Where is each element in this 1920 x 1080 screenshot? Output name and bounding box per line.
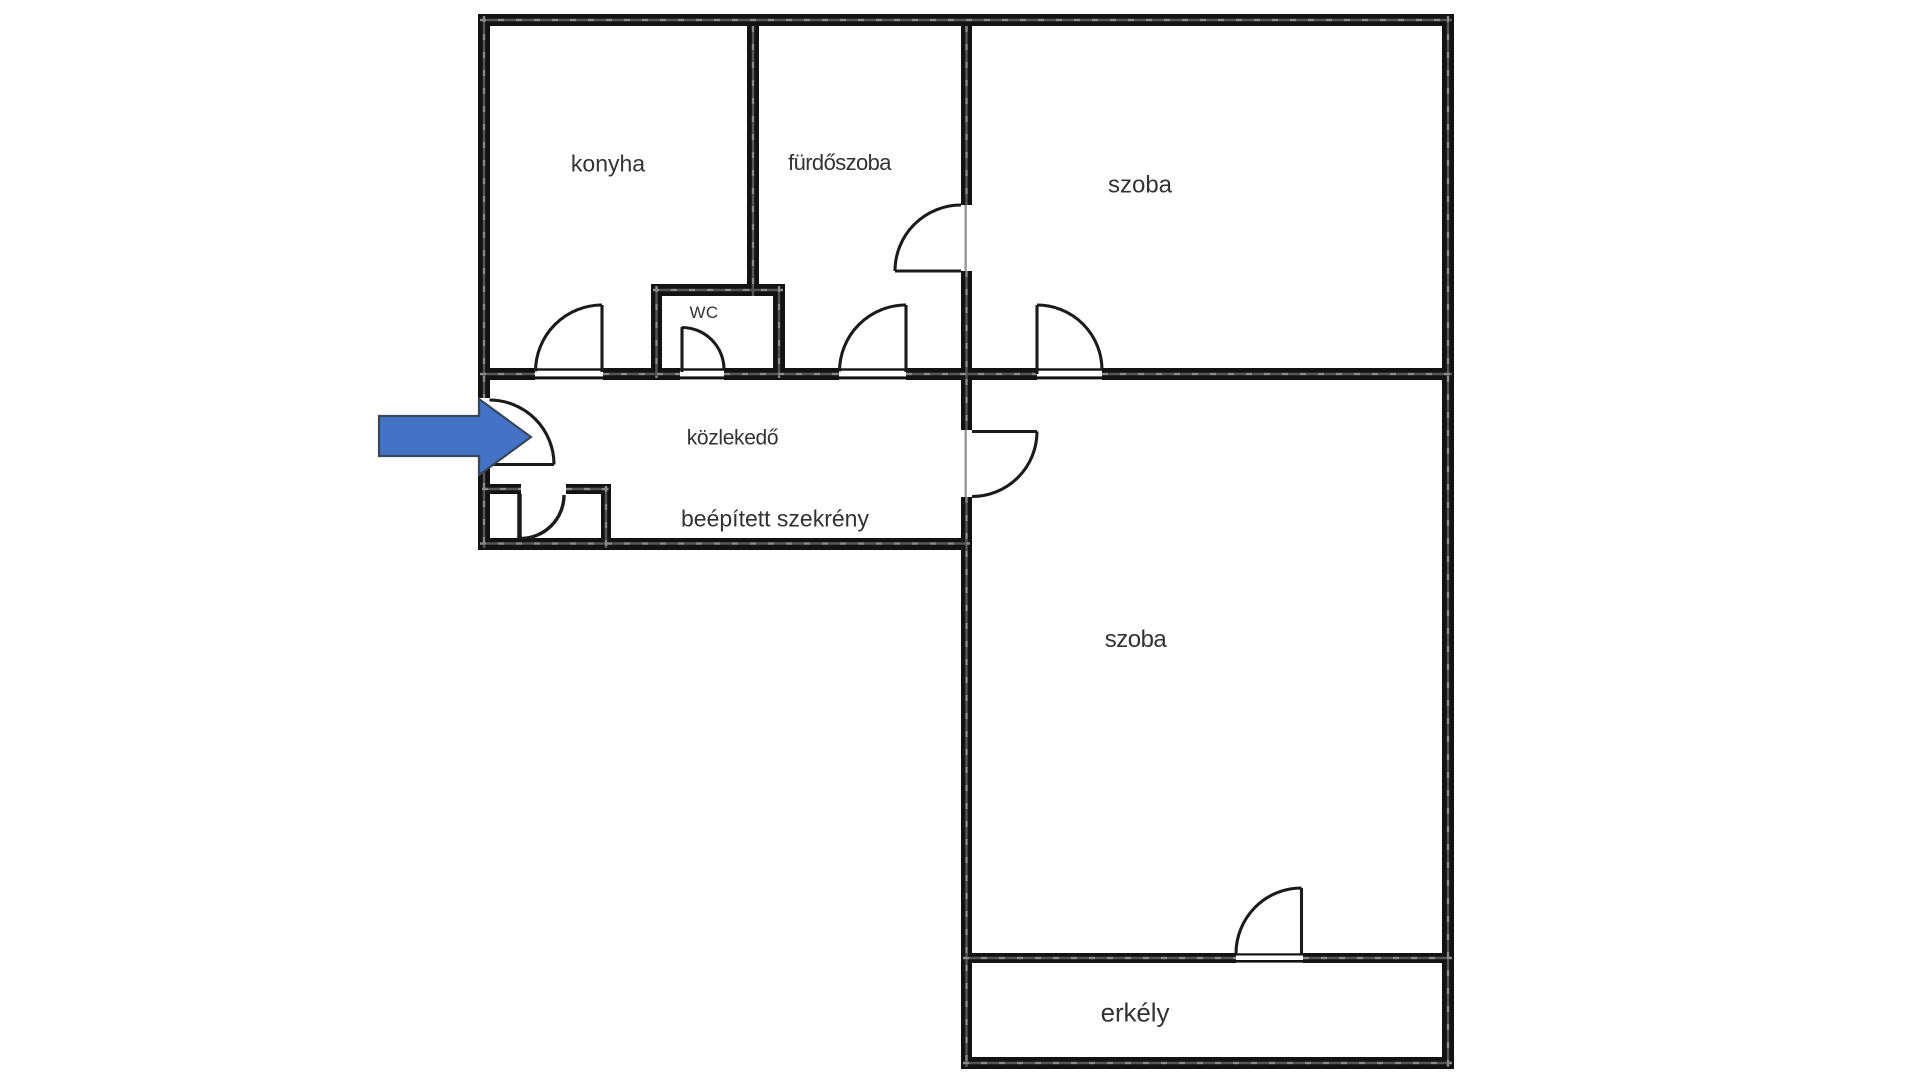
svg-text:erkély: erkély — [1101, 997, 1170, 1027]
svg-text:beépített szekrény: beépített szekrény — [681, 506, 869, 532]
svg-text:fürdőszoba: fürdőszoba — [788, 150, 892, 175]
svg-text:közlekedő: közlekedő — [687, 426, 778, 449]
svg-text:konyha: konyha — [571, 151, 645, 177]
svg-text:szoba: szoba — [1108, 172, 1173, 199]
svg-text:szoba: szoba — [1105, 626, 1168, 653]
svg-text:WC: WC — [690, 303, 719, 322]
